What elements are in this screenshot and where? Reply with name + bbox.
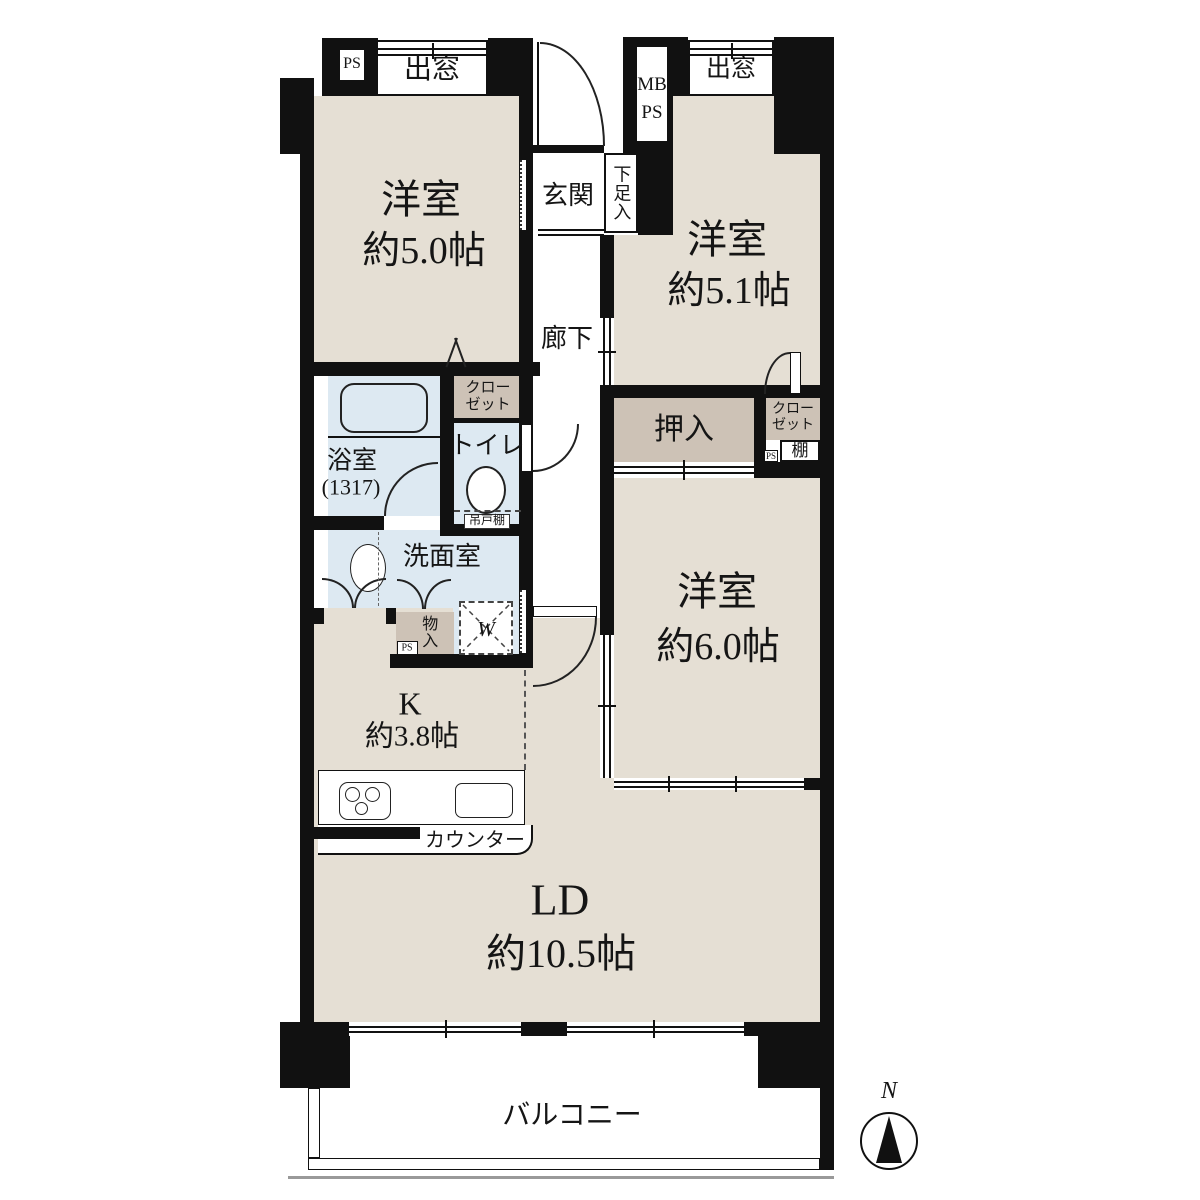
- wall: [774, 37, 834, 154]
- bedroom-ne-name: 洋室: [687, 217, 767, 263]
- oshiire-label: 押入: [654, 413, 714, 448]
- wall: [454, 418, 521, 423]
- closet-ne-label: クローゼット: [767, 402, 819, 434]
- wall: [386, 608, 396, 624]
- ps-e-label: PS: [766, 451, 776, 461]
- entrance-step-line: [538, 229, 604, 231]
- kitchen-size: 約3.8帖: [365, 720, 459, 753]
- living-name: LD: [531, 876, 590, 927]
- bedroom-ne-size: 約5.1帖: [667, 270, 791, 314]
- kitchen-ld-boundary: [524, 670, 526, 770]
- dashed-line: [378, 532, 379, 606]
- door-leaf: [533, 606, 597, 617]
- washer-label: W: [477, 617, 495, 641]
- wall: [314, 827, 420, 839]
- toilet-label: トイレ: [449, 433, 524, 462]
- compass-needle-icon: [876, 1116, 902, 1163]
- window: [349, 1022, 521, 1036]
- opening-dotted: [520, 160, 526, 230]
- bedroom-ne-floor: [672, 96, 774, 154]
- bedroom-nw-size: 約5.0帖: [362, 230, 486, 274]
- bath-doorway: [384, 516, 440, 530]
- window: [567, 1022, 744, 1036]
- door-leaf: [537, 42, 539, 146]
- closet-nw-label: クローゼット: [459, 380, 517, 415]
- sliding-door: [614, 778, 804, 790]
- corridor-label: 廊下: [541, 324, 593, 354]
- bath-name: 浴室: [327, 448, 377, 477]
- kitchen-sink: [455, 783, 513, 818]
- bedroom-e-name: 洋室: [677, 569, 757, 615]
- balcony-front-rail: [308, 1158, 820, 1170]
- balcony-side-rail: [308, 1088, 320, 1158]
- bay-window-nw-label: 出窓: [404, 54, 460, 86]
- kitchen-name: K: [398, 686, 421, 723]
- wall: [600, 398, 614, 635]
- dashed-line: [454, 510, 521, 512]
- bathtub: [340, 383, 428, 433]
- door-leaf: [790, 352, 801, 394]
- wall: [300, 85, 314, 1022]
- wall: [521, 1022, 567, 1036]
- wall: [804, 778, 820, 790]
- wall: [390, 654, 533, 668]
- wall: [314, 362, 540, 376]
- wall: [314, 608, 324, 624]
- bath-size: (1317): [322, 474, 381, 499]
- shelf-label: 棚: [792, 441, 809, 461]
- washroom-label: 洗面室: [403, 542, 481, 572]
- floor-plan: N 洋室 約5.0帖 洋室 約5.1帖 洋室 約6.0帖 K 約3.8帖 LD …: [0, 0, 1200, 1200]
- wall: [673, 37, 688, 96]
- bay-window-ne-label: 出窓: [706, 56, 756, 85]
- wall: [820, 154, 834, 1022]
- entrance-threshold: [533, 145, 604, 153]
- sliding-door: [600, 635, 614, 778]
- kitchen-counter: [318, 770, 525, 825]
- hanging-cupboard-label: 吊戸棚: [469, 514, 505, 528]
- shoe-cabinet-label: 下足入: [611, 165, 632, 222]
- ground-line: [288, 1176, 834, 1179]
- ps-ne-label: PS: [641, 102, 662, 124]
- balcony-pillar: [280, 1022, 350, 1088]
- compass-north-label: N: [881, 1078, 897, 1106]
- toilet-bowl: [466, 466, 506, 514]
- opening-dotted: [520, 590, 526, 653]
- ps-nw-label: PS: [343, 55, 361, 73]
- wall: [820, 1022, 834, 1170]
- wall: [600, 235, 614, 318]
- sliding-door: [600, 318, 614, 385]
- ps-mid-label: PS: [401, 642, 412, 654]
- bedroom-e-size: 約6.0帖: [656, 626, 780, 670]
- entrance-label: 玄関: [542, 181, 594, 211]
- wall: [638, 153, 673, 235]
- monoire-label: 物入: [418, 615, 436, 649]
- wall: [314, 516, 384, 530]
- wall: [754, 462, 834, 478]
- wall: [519, 38, 533, 667]
- balcony-label: バルコニー: [502, 1100, 641, 1132]
- stove: [339, 782, 391, 820]
- bedroom-nw-floor: [314, 96, 519, 362]
- bedroom-nw-name: 洋室: [381, 177, 461, 223]
- mb-ne-label: MB: [637, 74, 667, 96]
- sliding-door: [614, 462, 754, 478]
- entrance-step-line: [538, 234, 604, 236]
- bath-line: [328, 436, 440, 438]
- living-size: 約10.5帖: [486, 931, 636, 977]
- counter-label: カウンター: [425, 830, 525, 853]
